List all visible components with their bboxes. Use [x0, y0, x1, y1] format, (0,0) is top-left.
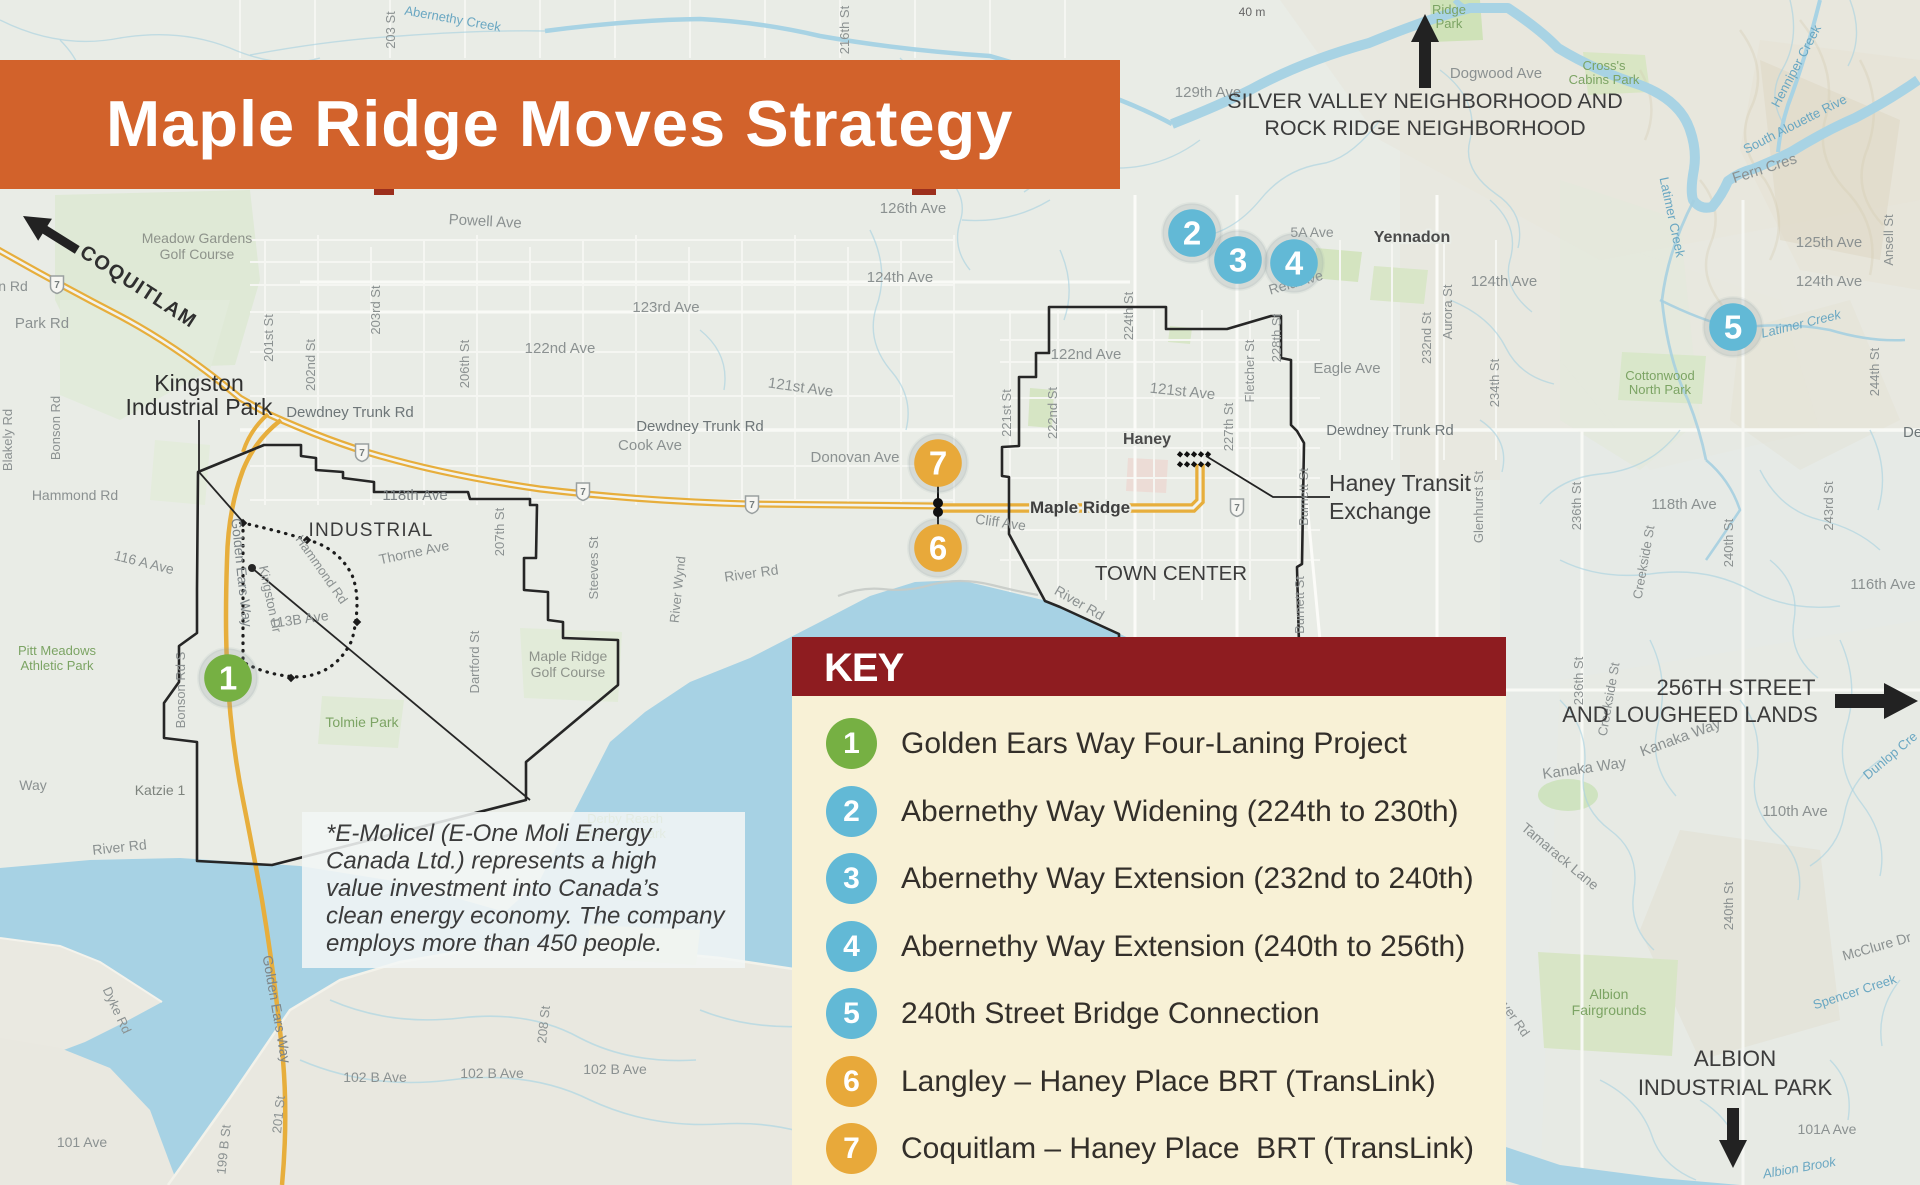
svg-text:Dewdney Trunk Rd: Dewdney Trunk Rd: [286, 404, 414, 421]
svg-text:Park: Park: [1436, 16, 1463, 31]
svg-text:202nd St: 202nd St: [303, 339, 318, 391]
svg-text:110th Ave: 110th Ave: [1762, 803, 1827, 820]
svg-text:SILVER VALLEY NEIGHBORHOOD AND: SILVER VALLEY NEIGHBORHOOD AND: [1227, 89, 1622, 113]
svg-text:ALBION: ALBION: [1694, 1046, 1777, 1071]
svg-text:227th St: 227th St: [1221, 402, 1236, 451]
svg-text:Yennadon: Yennadon: [1374, 229, 1450, 246]
svg-text:INDUSTRIAL PARK: INDUSTRIAL PARK: [1638, 1075, 1833, 1100]
svg-text:Eagle Ave: Eagle Ave: [1313, 360, 1380, 377]
svg-text:236th St: 236th St: [1569, 481, 1584, 530]
svg-text:*E-Molicel (E-One Moli Energy: *E-Molicel (E-One Moli Energy: [326, 820, 653, 847]
svg-text:Industrial Park: Industrial Park: [125, 394, 273, 420]
svg-text:Cook Ave: Cook Ave: [618, 437, 682, 454]
svg-text:Kingston: Kingston: [154, 370, 244, 396]
svg-text:North Park: North Park: [1629, 382, 1692, 397]
svg-text:5: 5: [1724, 309, 1742, 346]
svg-text:Bonson Rd: Bonson Rd: [48, 396, 63, 460]
svg-text:Fairgrounds: Fairgrounds: [1572, 1002, 1647, 1018]
svg-text:Ansell St: Ansell St: [1881, 214, 1896, 266]
svg-text:Burnett St: Burnett St: [1296, 468, 1311, 526]
svg-text:126th Ave: 126th Ave: [880, 200, 946, 217]
svg-text:102 B Ave: 102 B Ave: [583, 1061, 647, 1077]
svg-text:TOWN CENTER: TOWN CENTER: [1095, 562, 1247, 585]
svg-text:3: 3: [1229, 242, 1247, 279]
svg-text:Exchange: Exchange: [1329, 498, 1431, 524]
svg-text:Haney: Haney: [1123, 431, 1171, 448]
svg-text:224th St: 224th St: [1121, 291, 1136, 340]
svg-text:244th St: 244th St: [1867, 347, 1882, 396]
svg-text:40 m: 40 m: [1239, 5, 1266, 19]
svg-text:Meadow Gardens: Meadow Gardens: [142, 230, 253, 246]
svg-text:7: 7: [54, 280, 60, 291]
svg-text:Athletic Park: Athletic Park: [21, 658, 94, 673]
svg-text:7: 7: [580, 487, 586, 498]
svg-text:240th St: 240th St: [1721, 881, 1736, 930]
svg-text:124th Ave: 124th Ave: [867, 269, 933, 286]
svg-text:value investment into Canada’s: value investment into Canada’s: [326, 875, 659, 902]
svg-text:Albion: Albion: [1590, 986, 1629, 1002]
svg-text:Steeves St: Steeves St: [586, 536, 601, 599]
svg-text:Tolmie Park: Tolmie Park: [325, 714, 399, 730]
svg-text:4: 4: [1285, 245, 1304, 282]
svg-text:Ridge: Ridge: [1432, 2, 1466, 17]
svg-text:Dartford St: Dartford St: [467, 630, 482, 693]
svg-text:INDUSTRIAL: INDUSTRIAL: [309, 520, 434, 541]
svg-text:Donovan Ave: Donovan Ave: [811, 449, 900, 466]
svg-text:102 B Ave: 102 B Ave: [460, 1065, 524, 1081]
svg-text:1: 1: [219, 660, 237, 697]
svg-text:124th Ave: 124th Ave: [1471, 273, 1537, 290]
svg-text:123rd Ave: 123rd Ave: [632, 299, 699, 316]
svg-text:222nd St: 222nd St: [1045, 387, 1060, 439]
svg-text:118th Ave: 118th Ave: [1651, 496, 1716, 513]
svg-text:203 St: 203 St: [383, 11, 398, 49]
svg-text:Canada Ltd.) represents a high: Canada Ltd.) represents a high: [326, 848, 657, 875]
svg-text:243rd St: 243rd St: [1821, 481, 1836, 531]
svg-text:207th St: 207th St: [492, 507, 507, 556]
svg-text:Hammond Rd: Hammond Rd: [32, 487, 118, 503]
svg-text:6: 6: [929, 530, 947, 567]
svg-text:employs more than 450 people.: employs more than 450 people.: [326, 930, 662, 957]
svg-text:203rd St: 203rd St: [368, 285, 383, 335]
svg-text:232nd St: 232nd St: [1419, 312, 1434, 364]
svg-text:Katzie 1: Katzie 1: [135, 782, 186, 798]
svg-text:228th St: 228th St: [1269, 313, 1284, 362]
svg-text:AND LOUGHEED LANDS: AND LOUGHEED LANDS: [1562, 702, 1818, 727]
svg-text:234th St: 234th St: [1487, 358, 1502, 407]
svg-text:Maple Ridge: Maple Ridge: [529, 648, 608, 664]
svg-text:Park Rd: Park Rd: [15, 315, 69, 332]
svg-text:7: 7: [1234, 503, 1240, 514]
svg-text:125th Ave: 125th Ave: [1796, 234, 1862, 251]
svg-text:101 Ave: 101 Ave: [57, 1134, 108, 1150]
svg-text:7: 7: [359, 448, 365, 459]
svg-text:Cottonwood: Cottonwood: [1625, 368, 1694, 383]
svg-text:Golf Course: Golf Course: [531, 664, 606, 680]
svg-text:7: 7: [929, 445, 947, 482]
svg-text:Dogwood Ave: Dogwood Ave: [1450, 65, 1542, 82]
svg-text:256TH STREET: 256TH STREET: [1657, 675, 1816, 700]
svg-text:n Rd: n Rd: [0, 278, 28, 294]
svg-text:Glenhurst St: Glenhurst St: [1471, 470, 1486, 543]
svg-text:Haney Transit: Haney Transit: [1329, 470, 1472, 496]
svg-text:Way: Way: [19, 777, 46, 793]
svg-text:clean energy economy. The comp: clean energy economy. The company: [326, 903, 726, 930]
svg-text:Dewdney Trunk Rd: Dewdney Trunk Rd: [636, 418, 764, 435]
svg-text:Blakely Rd: Blakely Rd: [0, 409, 15, 471]
svg-text:216th St: 216th St: [837, 5, 852, 54]
svg-text:206th St: 206th St: [457, 339, 472, 388]
svg-text:116th Ave: 116th Ave: [1850, 576, 1915, 593]
svg-text:201st St: 201st St: [261, 314, 276, 362]
svg-text:236th St: 236th St: [1571, 656, 1586, 705]
svg-text:2: 2: [1183, 215, 1201, 252]
svg-text:124th Ave: 124th Ave: [1796, 273, 1862, 290]
svg-text:Dewdney Trunk Rd: Dewdney Trunk Rd: [1326, 422, 1454, 439]
svg-text:122nd Ave: 122nd Ave: [1051, 346, 1122, 363]
svg-text:Fletcher St: Fletcher St: [1242, 339, 1257, 402]
svg-text:Cabins Park: Cabins Park: [1569, 72, 1640, 87]
svg-text:Cross's: Cross's: [1583, 58, 1626, 73]
svg-text:122nd Ave: 122nd Ave: [525, 340, 596, 357]
svg-text:Maple Ridge: Maple Ridge: [1030, 498, 1130, 517]
svg-text:Pitt Meadows: Pitt Meadows: [18, 643, 97, 658]
svg-text:101A Ave: 101A Ave: [1798, 1121, 1857, 1137]
svg-text:118th Ave: 118th Ave: [382, 487, 447, 504]
svg-text:Aurora St: Aurora St: [1440, 284, 1455, 339]
svg-text:240th St: 240th St: [1721, 518, 1736, 567]
svg-text:7: 7: [749, 500, 755, 511]
svg-text:ROCK RIDGE NEIGHBORHOOD: ROCK RIDGE NEIGHBORHOOD: [1264, 116, 1585, 140]
svg-text:102 B Ave: 102 B Ave: [343, 1069, 407, 1085]
svg-text:221st St: 221st St: [999, 389, 1014, 437]
svg-text:Golf Course: Golf Course: [160, 246, 235, 262]
svg-text:Dewd: Dewd: [1903, 424, 1920, 441]
svg-text:Burnett St: Burnett St: [1292, 576, 1307, 634]
svg-text:Bonson Rd S: Bonson Rd S: [173, 651, 188, 728]
